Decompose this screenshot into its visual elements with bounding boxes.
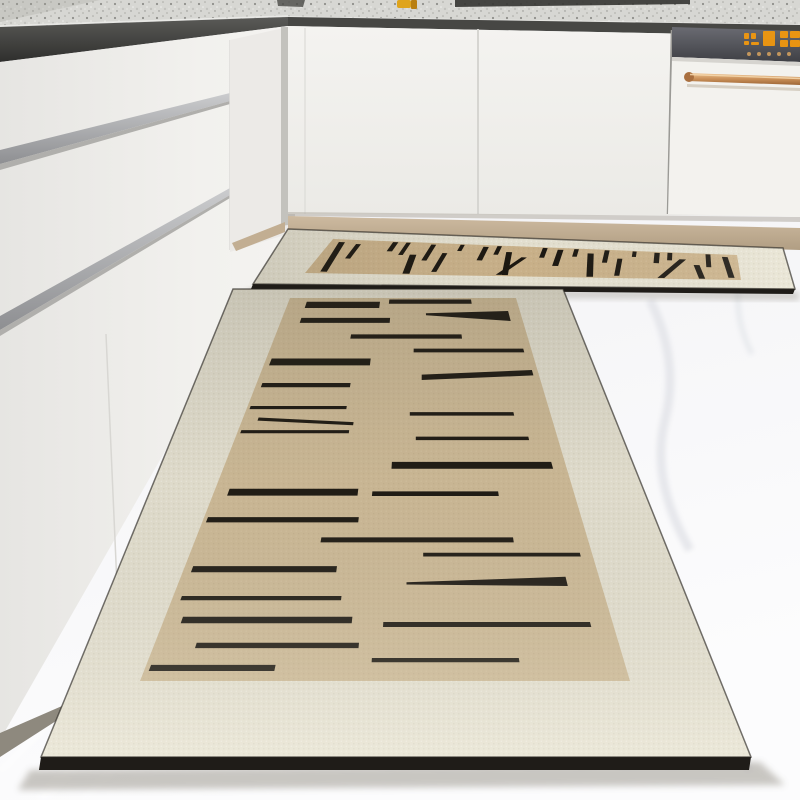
dw-led-segment bbox=[780, 40, 788, 47]
dw-led-segment bbox=[790, 31, 800, 38]
dw-led-segment bbox=[780, 31, 788, 38]
dw-button-dot bbox=[787, 52, 791, 56]
dw-led-segment bbox=[744, 33, 749, 39]
handle-end-cap bbox=[684, 72, 694, 82]
dw-button-dot bbox=[747, 52, 751, 56]
scene-svg bbox=[0, 0, 800, 800]
dw-led-segment bbox=[751, 42, 759, 45]
dw-led-segment bbox=[790, 40, 800, 47]
dw-led-segment bbox=[744, 41, 749, 45]
counter-corner-object bbox=[277, 0, 305, 7]
dw-button-dot bbox=[757, 52, 761, 56]
dw-led-segment bbox=[763, 31, 775, 46]
kitchen-scene-photo bbox=[0, 0, 800, 800]
cabinet-end-panel bbox=[230, 27, 288, 252]
dw-button-dot bbox=[777, 52, 781, 56]
counter-item-2 bbox=[411, 0, 417, 9]
mat-edge-thickness bbox=[39, 757, 751, 770]
dishwasher bbox=[668, 27, 800, 217]
dw-led-segment bbox=[751, 33, 756, 39]
counter-item bbox=[397, 0, 411, 8]
dw-button-dot bbox=[767, 52, 771, 56]
